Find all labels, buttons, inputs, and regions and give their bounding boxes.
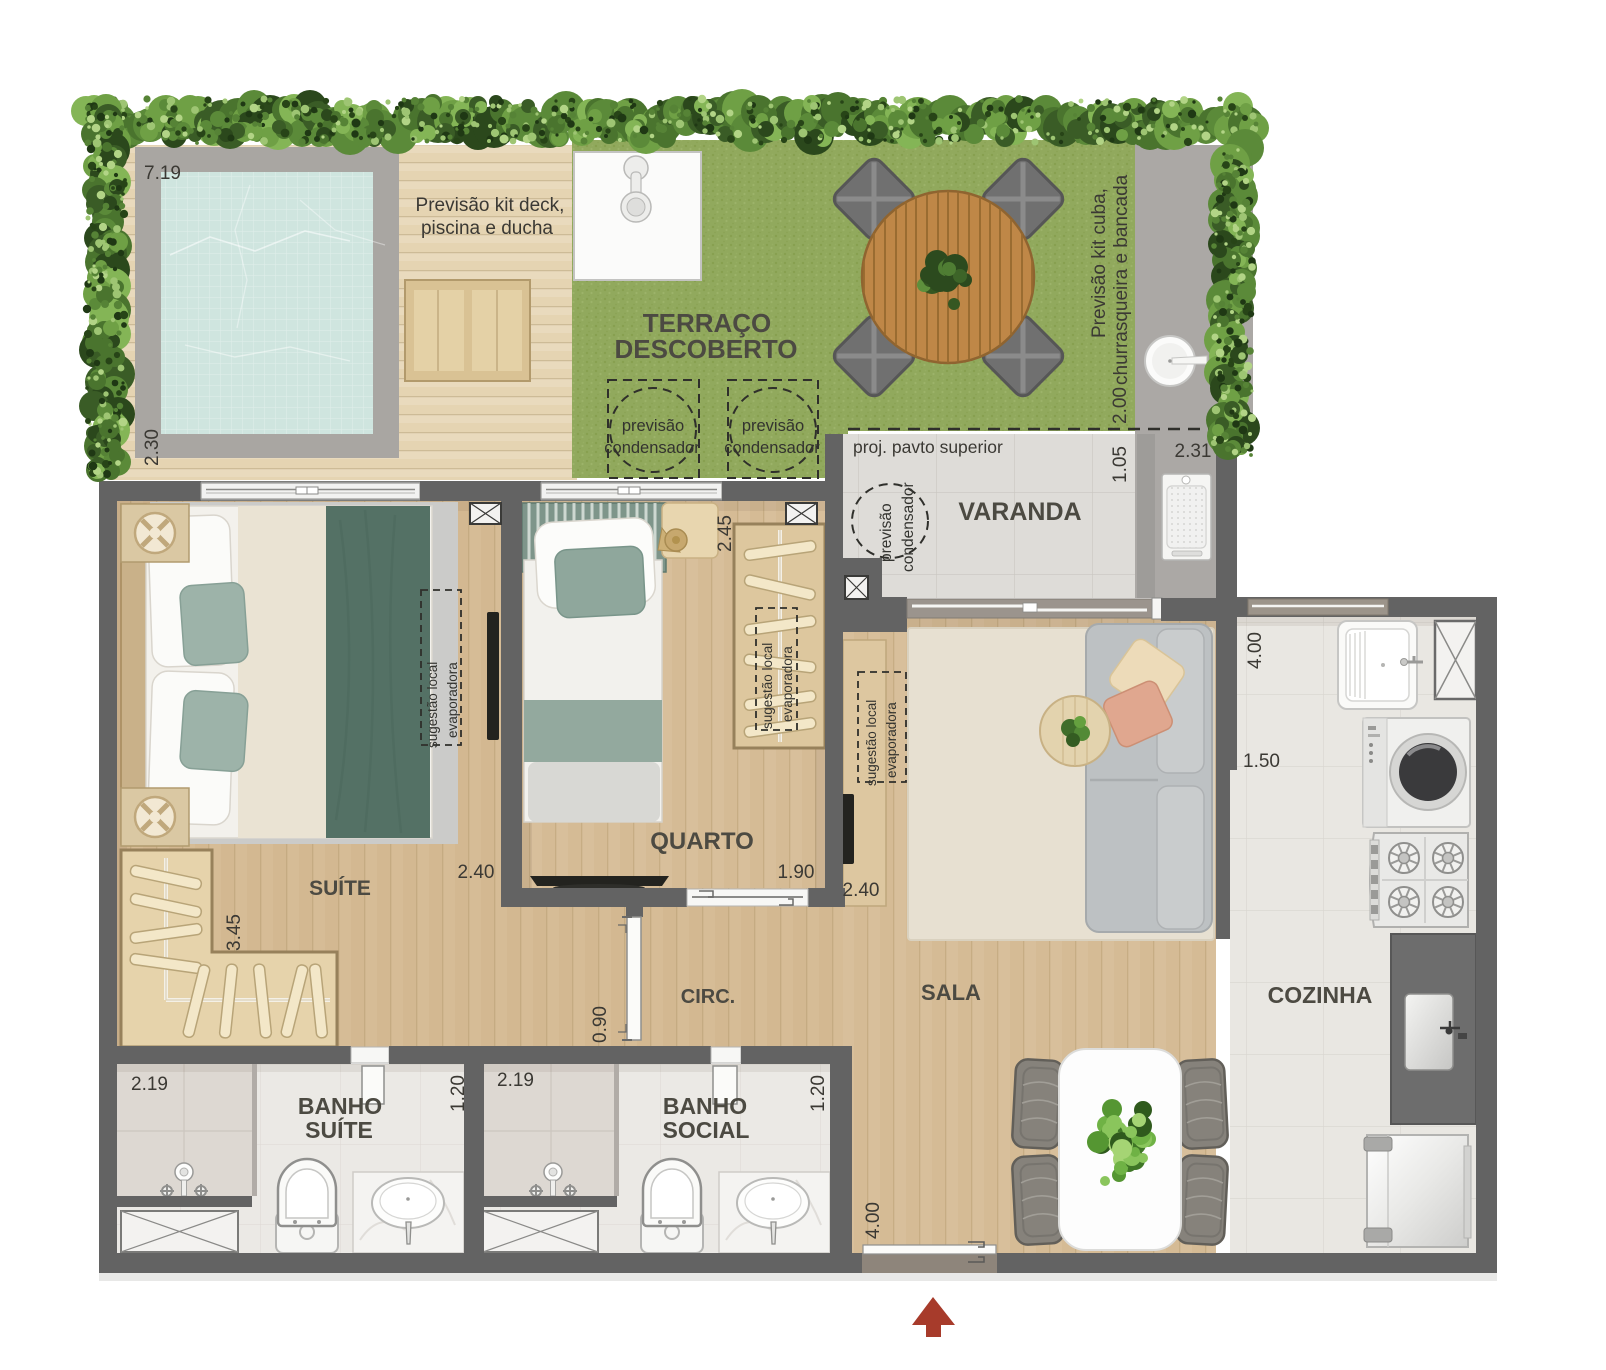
svg-text:evaporadora: evaporadora [884,702,899,778]
svg-text:1.90: 1.90 [778,862,815,883]
svg-text:2.19: 2.19 [131,1074,168,1095]
svg-text:evaporadora: evaporadora [780,646,795,722]
svg-text:SALA: SALA [921,980,981,1005]
svg-text:condensador: condensador [900,482,917,572]
svg-text:proj. pavto superior: proj. pavto superior [853,437,1003,457]
svg-text:SUÍTE: SUÍTE [305,1116,373,1143]
svg-text:evaporadora: evaporadora [445,662,460,738]
svg-text:1.05: 1.05 [1110,446,1131,483]
svg-text:2.45: 2.45 [715,515,736,552]
svg-text:sugestão local: sugestão local [760,643,775,729]
svg-text:QUARTO: QUARTO [650,828,754,855]
svg-text:2.19: 2.19 [497,1070,534,1091]
svg-text:previsão: previsão [742,417,804,435]
svg-text:BANHO: BANHO [663,1093,747,1119]
svg-text:SOCIAL: SOCIAL [663,1117,750,1143]
svg-text:previsão: previsão [622,417,684,435]
svg-text:Previsão kit cuba,: Previsão kit cuba, [1089,188,1110,338]
svg-text:3.45: 3.45 [224,914,245,951]
svg-text:DESCOBERTO: DESCOBERTO [615,334,798,364]
svg-text:Previsão kit deck,: Previsão kit deck, [416,195,565,216]
svg-text:2.30: 2.30 [142,429,163,466]
svg-text:4.00: 4.00 [863,1202,884,1239]
svg-text:previsão: previsão [878,503,895,562]
svg-text:sugestão local: sugestão local [425,662,440,748]
svg-text:CIRC.: CIRC. [681,986,735,1008]
svg-text:SUÍTE: SUÍTE [309,877,371,900]
svg-text:VARANDA: VARANDA [958,498,1081,526]
svg-text:condensador: condensador [604,439,700,457]
svg-text:condensador: condensador [724,439,820,457]
svg-text:2.40: 2.40 [843,880,880,901]
svg-text:2.40: 2.40 [458,862,495,883]
svg-text:2.31: 2.31 [1175,441,1212,462]
svg-text:churrasqueira e bancada: churrasqueira e bancada [1111,174,1132,385]
svg-text:1.20: 1.20 [448,1075,469,1112]
svg-text:2.00: 2.00 [1110,387,1131,424]
svg-text:COZINHA: COZINHA [1268,982,1373,1008]
svg-text:piscina e ducha: piscina e ducha [421,218,553,239]
svg-text:0.90: 0.90 [590,1006,611,1043]
svg-text:1.50: 1.50 [1243,751,1280,772]
svg-text:BANHO: BANHO [298,1093,382,1119]
svg-text:4.00: 4.00 [1245,632,1266,669]
svg-text:7.19: 7.19 [144,163,181,184]
svg-text:1.20: 1.20 [808,1075,829,1112]
svg-text:sugestão local: sugestão local [864,700,879,786]
